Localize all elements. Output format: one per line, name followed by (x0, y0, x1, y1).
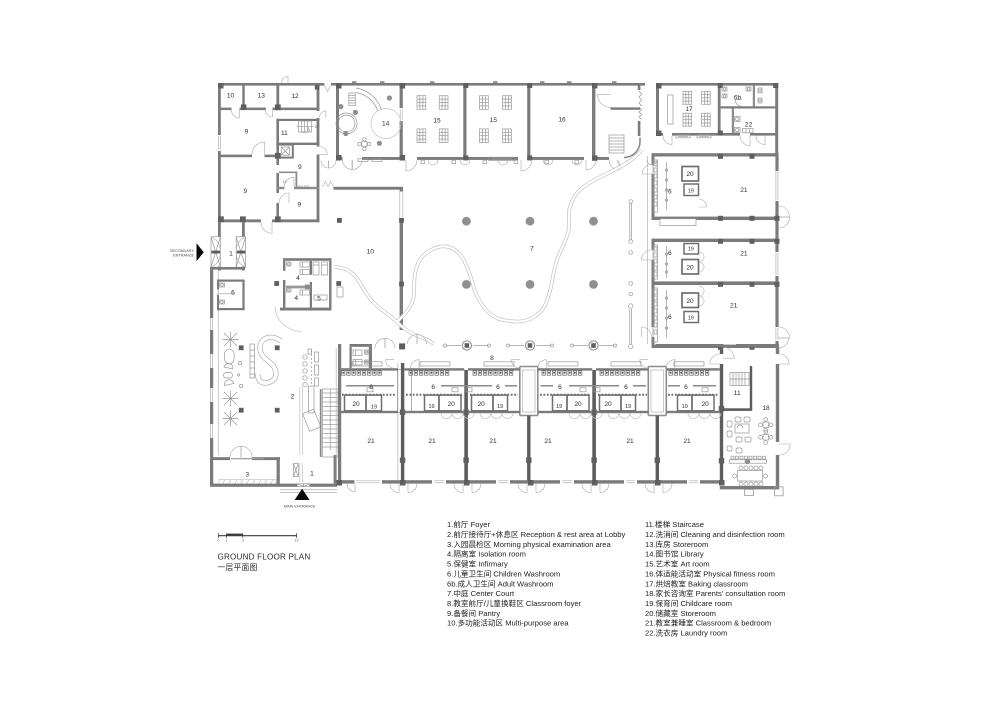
svg-text:18: 18 (762, 405, 770, 412)
svg-text:19: 19 (497, 404, 503, 410)
svg-text:4: 4 (294, 295, 298, 302)
svg-text:12: 12 (291, 93, 299, 100)
svg-text:19: 19 (625, 404, 631, 410)
svg-text:15: 15 (490, 117, 498, 124)
svg-text:18.家长咨询室 Parents' consultatio: 18.家长咨询室 Parents' consultation room (645, 588, 785, 598)
svg-text:9: 9 (298, 164, 302, 171)
svg-text:6b: 6b (734, 95, 742, 102)
svg-text:20: 20 (686, 265, 694, 272)
svg-text:11: 11 (734, 390, 741, 397)
svg-text:19: 19 (556, 404, 562, 410)
svg-text:19: 19 (371, 404, 377, 410)
svg-text:21: 21 (683, 438, 691, 445)
svg-text:11: 11 (281, 130, 288, 137)
svg-text:3: 3 (245, 471, 249, 478)
svg-text:21: 21 (544, 438, 552, 445)
svg-text:10.多功能活动区 Multi-purpose area: 10.多功能活动区 Multi-purpose area (447, 618, 569, 628)
svg-text:9: 9 (245, 129, 249, 136)
svg-text:9: 9 (243, 188, 247, 195)
svg-text:13: 13 (283, 180, 287, 184)
svg-text:20: 20 (686, 298, 694, 305)
svg-text:6: 6 (624, 384, 628, 391)
svg-text:6: 6 (231, 289, 235, 296)
svg-text:6: 6 (684, 384, 688, 391)
svg-text:19: 19 (688, 188, 694, 194)
svg-text:12.洗消间 Cleaning and disinfect: 12.洗消间 Cleaning and disinfection room (645, 529, 785, 539)
svg-text:21: 21 (730, 303, 738, 310)
svg-text:20: 20 (352, 401, 360, 408)
svg-text:MAIN ENTRANCE: MAIN ENTRANCE (284, 505, 316, 509)
svg-text:CP: CP (315, 125, 321, 129)
svg-text:10: 10 (295, 539, 299, 543)
svg-text:6: 6 (369, 384, 373, 391)
svg-text:3: 3 (242, 539, 244, 543)
svg-text:6: 6 (668, 189, 672, 196)
svg-text:17: 17 (685, 106, 693, 113)
svg-text:20: 20 (478, 401, 486, 408)
svg-text:13: 13 (258, 92, 266, 99)
svg-text:6.儿童卫生间 Children Washroom: 6.儿童卫生间 Children Washroom (447, 568, 560, 578)
svg-text:7.中庭 Center Court: 7.中庭 Center Court (447, 588, 515, 598)
svg-text:20: 20 (686, 171, 694, 178)
svg-text:16: 16 (558, 116, 566, 123)
svg-text:SECONDARY: SECONDARY (170, 249, 194, 253)
svg-text:GROUND FLOOR PLAN: GROUND FLOOR PLAN (218, 553, 311, 562)
svg-text:21: 21 (367, 438, 375, 445)
svg-text:22: 22 (745, 122, 753, 129)
svg-text:15: 15 (433, 117, 441, 124)
svg-text:一层平面图: 一层平面图 (218, 563, 258, 572)
svg-text:5: 5 (317, 296, 321, 303)
svg-text:21.教室兼睡室 Classroom & bedroom: 21.教室兼睡室 Classroom & bedroom (645, 618, 771, 628)
svg-text:15.艺术室 Art room: 15.艺术室 Art room (645, 558, 710, 568)
svg-text:20: 20 (574, 401, 582, 408)
svg-text:JACUZZI: JACUZZI (297, 184, 309, 188)
svg-text:21: 21 (489, 438, 497, 445)
svg-text:19: 19 (428, 404, 434, 410)
svg-text:1.前厅 Foyer: 1.前厅 Foyer (447, 519, 491, 529)
svg-text:6b.成人卫生间 Adult Washroom: 6b.成人卫生间 Adult Washroom (447, 578, 553, 588)
svg-text:0: 0 (217, 539, 219, 543)
svg-text:4.隔离室 Isolation room: 4.隔离室 Isolation room (447, 549, 526, 559)
svg-text:6: 6 (668, 314, 672, 321)
svg-text:21: 21 (626, 438, 634, 445)
svg-text:9: 9 (297, 202, 301, 209)
svg-text:20: 20 (448, 401, 456, 408)
svg-text:20: 20 (702, 401, 710, 408)
svg-text:5.保健室 Infirmary: 5.保健室 Infirmary (447, 558, 508, 568)
svg-text:7: 7 (530, 246, 534, 253)
svg-text:19: 19 (682, 404, 688, 410)
svg-text:6: 6 (668, 250, 672, 257)
svg-text:6: 6 (431, 384, 435, 391)
svg-text:13.库房 Storeroom: 13.库房 Storeroom (645, 539, 708, 549)
svg-text:8: 8 (490, 355, 494, 362)
svg-text:2.前厅接待厅+休息区 Reception & rest: 2.前厅接待厅+休息区 Reception & rest area at Lob… (447, 529, 626, 539)
svg-text:1: 1 (225, 539, 227, 543)
svg-text:4: 4 (296, 275, 300, 282)
svg-text:16.体适能活动室 Physical fitness ro: 16.体适能活动室 Physical fitness room (645, 568, 775, 578)
svg-text:19.保育间 Childcare room: 19.保育间 Childcare room (645, 598, 732, 608)
svg-text:22.洗衣房 Laundry room: 22.洗衣房 Laundry room (645, 628, 727, 638)
svg-text:10: 10 (227, 93, 235, 100)
svg-text:17.烘焙教室 Baking classroom: 17.烘焙教室 Baking classroom (645, 578, 748, 588)
svg-text:1: 1 (229, 250, 233, 257)
svg-text:19: 19 (688, 316, 694, 322)
svg-text:19: 19 (688, 247, 694, 253)
svg-text:14.图书馆 Library: 14.图书馆 Library (645, 549, 704, 559)
svg-text:20: 20 (604, 401, 612, 408)
svg-text:8.教室前厅/儿童换鞋区 Classroom foyer: 8.教室前厅/儿童换鞋区 Classroom foyer (447, 598, 582, 608)
svg-text:11.楼梯 Staircase: 11.楼梯 Staircase (645, 519, 704, 529)
svg-text:21: 21 (740, 251, 748, 258)
svg-text:ENTRANCE: ENTRANCE (173, 254, 194, 258)
svg-text:14: 14 (382, 120, 390, 127)
svg-text:20.储藏室 Storeroom: 20.储藏室 Storeroom (645, 608, 716, 618)
svg-text:9.备餐间 Pantry: 9.备餐间 Pantry (447, 608, 500, 618)
svg-text:21: 21 (740, 187, 748, 194)
svg-text:21: 21 (428, 438, 436, 445)
svg-text:10: 10 (367, 249, 375, 256)
svg-text:2: 2 (291, 394, 295, 401)
svg-text:3.入园晨检区 Morning physical exam: 3.入园晨检区 Morning physical examination are… (447, 539, 612, 549)
svg-text:6: 6 (496, 384, 500, 391)
svg-text:1: 1 (310, 471, 314, 478)
svg-text:6: 6 (558, 384, 562, 391)
